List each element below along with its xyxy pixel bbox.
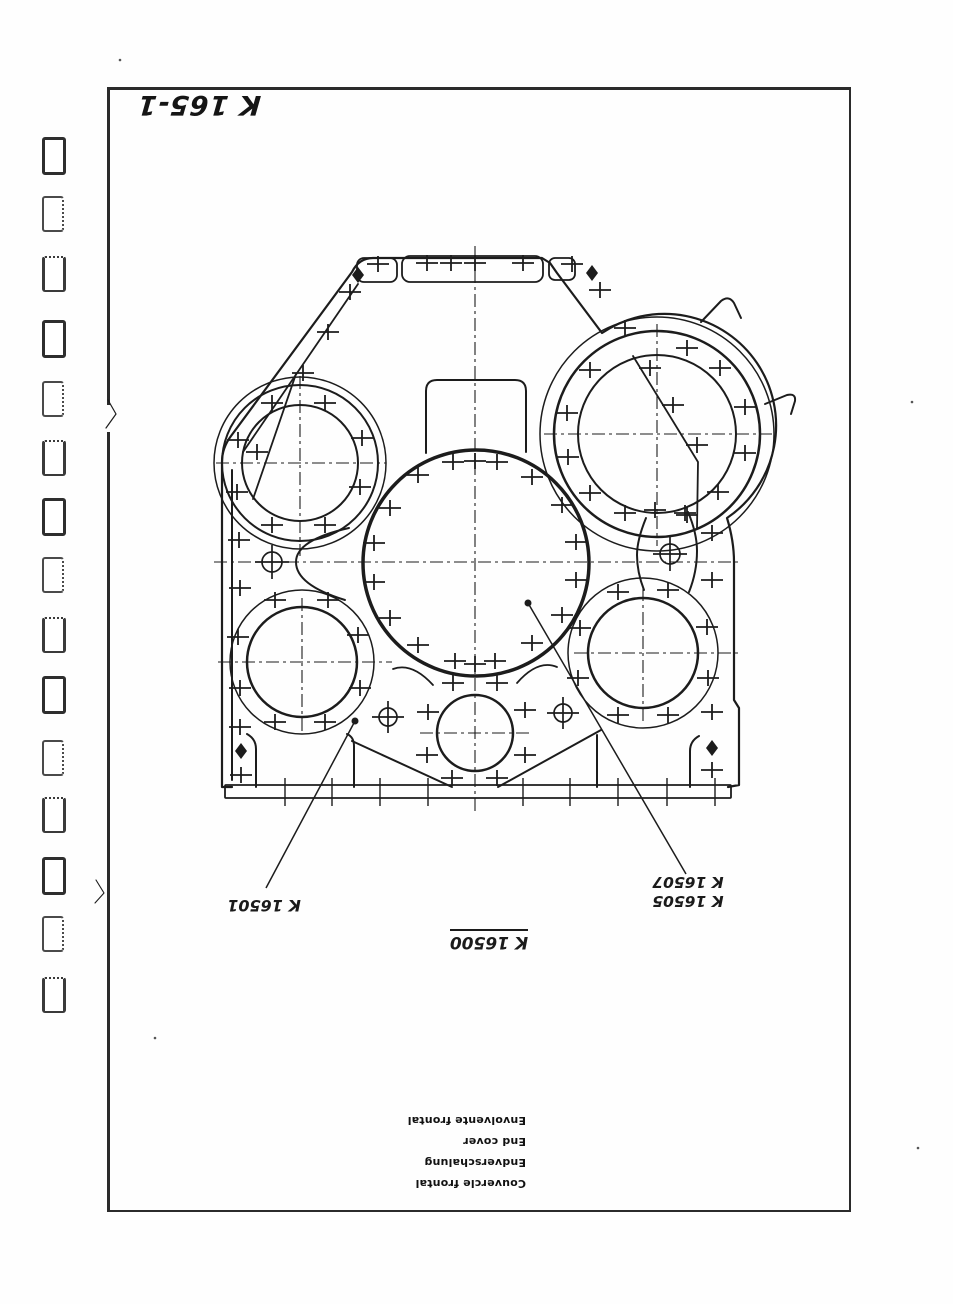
technical-drawing bbox=[0, 0, 953, 1304]
part-label-k16500: K 16500 bbox=[430, 932, 548, 952]
centerlines bbox=[214, 246, 772, 812]
scan-specks bbox=[119, 59, 920, 1150]
part-label-line2: K 16507 bbox=[644, 872, 732, 891]
leader-lines bbox=[266, 600, 686, 889]
base-flange-ticks bbox=[285, 778, 715, 806]
caption-block: Couvercle frontal Endverschalung End cov… bbox=[418, 1110, 526, 1194]
caption-line-german: Endverschalung bbox=[418, 1152, 526, 1173]
part-label-k16505-k16507: K 16505 K 16507 bbox=[644, 872, 732, 910]
part-label-k16501: K 16501 bbox=[224, 896, 304, 915]
caption-line-french: Couvercle frontal bbox=[418, 1173, 526, 1194]
caption-line-spanish: Envolvente frontal bbox=[418, 1110, 526, 1131]
caption-line-english: End cover bbox=[418, 1131, 526, 1152]
gasket-outline bbox=[95, 256, 795, 903]
part-label-underlined-text: K 16500 bbox=[450, 929, 528, 952]
scanned-catalog-page: K 165-1 K 16501 K 16505 K 16507 K 16500 … bbox=[0, 0, 953, 1304]
part-label-line1: K 16505 bbox=[644, 891, 732, 910]
